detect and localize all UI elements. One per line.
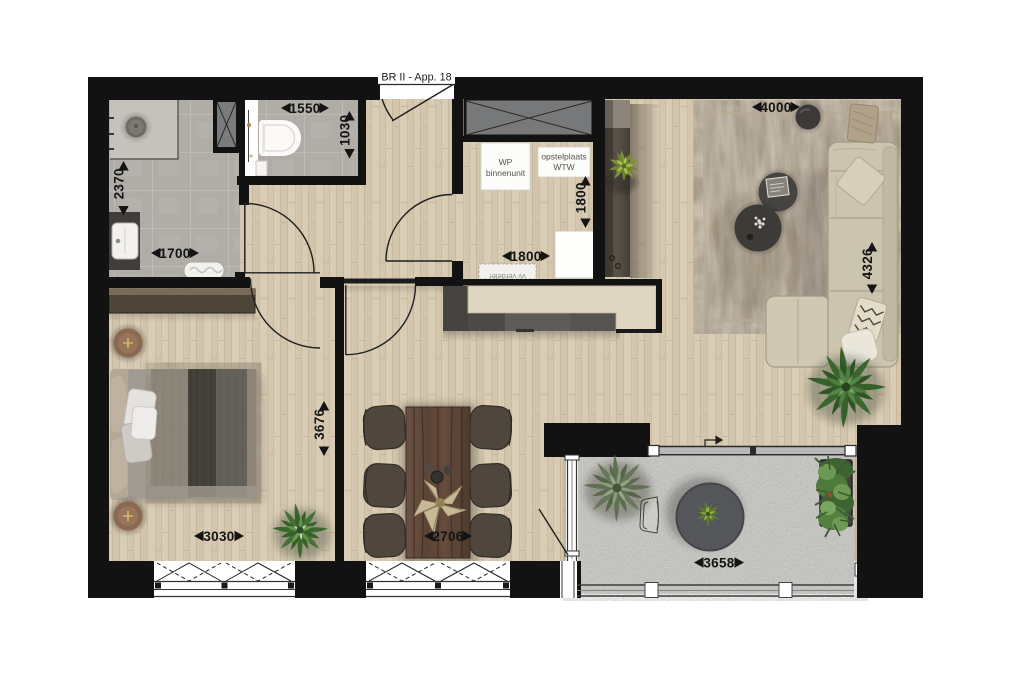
- svg-text:1030: 1030: [338, 115, 353, 146]
- svg-text:3676: 3676: [312, 408, 327, 439]
- svg-text:opstelplaats: opstelplaats: [541, 152, 586, 162]
- svg-text:1800: 1800: [510, 249, 541, 264]
- svg-text:2706: 2706: [432, 529, 463, 544]
- svg-text:3658: 3658: [703, 555, 734, 570]
- svg-text:1550: 1550: [289, 101, 320, 116]
- svg-text:1700: 1700: [159, 246, 190, 261]
- svg-text:WTW: WTW: [553, 162, 574, 172]
- svg-text:1800: 1800: [574, 182, 589, 213]
- svg-text:2370: 2370: [112, 168, 127, 199]
- svg-text:4000: 4000: [760, 100, 791, 115]
- svg-text:WP: WP: [499, 157, 513, 167]
- svg-text:4326: 4326: [860, 248, 875, 279]
- svg-text:BR II - App. 18: BR II - App. 18: [381, 72, 451, 84]
- svg-text:binnenunit: binnenunit: [486, 168, 526, 178]
- svg-text:3030: 3030: [203, 529, 234, 544]
